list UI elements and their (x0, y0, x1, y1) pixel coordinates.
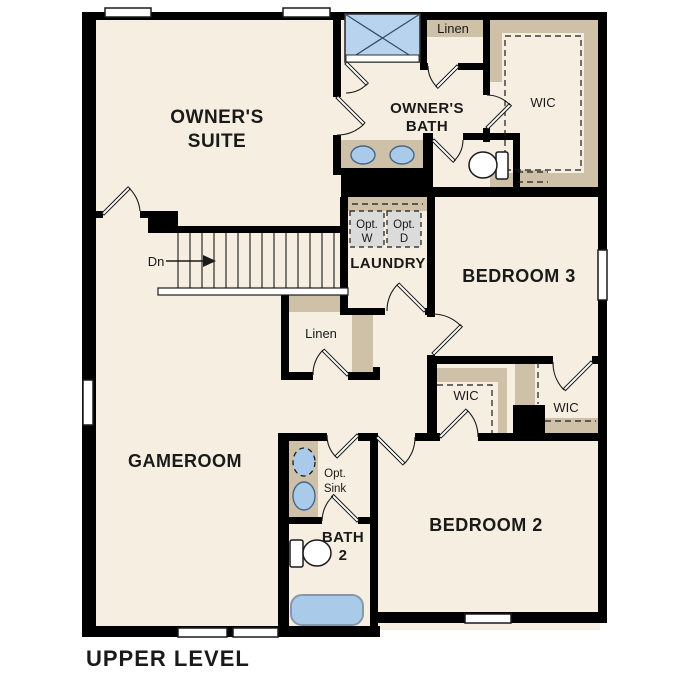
wall-bedroom3-south-b (592, 356, 607, 364)
toilet-tank (496, 152, 508, 179)
wall-linen-hall-south (281, 372, 313, 380)
sink-right (390, 146, 414, 164)
wic-owners-shelf-top (490, 19, 598, 33)
wall-stair-top (178, 226, 348, 233)
wic-owners-shelf-right (584, 33, 598, 187)
label-opt-dryer-line1: Opt. (393, 219, 415, 231)
wall-bath-west-lower (333, 135, 341, 175)
toilet-tank (290, 540, 303, 567)
label-opt-sink-line2: Sink (324, 483, 347, 495)
wall-laundry-south (340, 308, 385, 315)
label-opt-sink-line1: Opt. (324, 468, 346, 480)
sink-left (351, 146, 375, 164)
sink (293, 482, 315, 510)
wall-bath2-mid (283, 517, 322, 524)
label-opt-dryer-line2: D (400, 233, 408, 245)
floor-plan-drawing: OWNER'S SUITE OWNER'S BATH Linen WIC Dn … (0, 0, 687, 687)
label-opt-washer-line2: W (362, 233, 373, 245)
wall-toilet-west (423, 140, 433, 187)
label-opt-washer-line1: Opt. (356, 219, 378, 231)
wall-wic1-west (427, 364, 437, 441)
label-bedroom3: BEDROOM 3 (462, 266, 576, 286)
label-bedroom2: BEDROOM 2 (429, 515, 543, 535)
wall-gameroom-east (278, 433, 289, 636)
window-gameroom-bottom-right (233, 628, 278, 637)
wall-bedroom3-south-a (427, 356, 553, 364)
bathtub (291, 595, 363, 625)
window-bedroom3-right (598, 250, 607, 300)
label-owners-bath-line1: OWNER'S (390, 100, 464, 117)
label-stairs-dn: Dn (148, 254, 165, 269)
label-gameroom: GAMEROOM (128, 451, 242, 471)
optional-sink (293, 448, 315, 476)
label-bath2-line2: 2 (339, 547, 348, 564)
wall-toilet-east (513, 133, 520, 187)
wall-linen-hall-west (281, 294, 289, 380)
label-laundry: LAUNDRY (350, 255, 426, 272)
label-owners-bath-line2: BATH (406, 118, 448, 135)
stair-rail (158, 288, 348, 295)
wic-bedroom3-shelf-top (432, 368, 507, 382)
label-wic-bedroom3: WIC (453, 388, 478, 403)
wall-linen-wic (483, 12, 490, 95)
shower (345, 14, 420, 62)
wall-laundry-east (427, 197, 435, 317)
floor-plan-page: OWNER'S SUITE OWNER'S BATH Linen WIC Dn … (0, 0, 687, 687)
label-owners-suite-line1: OWNER'S (170, 107, 264, 128)
wall-mid-horizontal (341, 187, 607, 197)
label-owners-suite-line2: SUITE (188, 131, 246, 152)
label-wic-owners: WIC (530, 95, 555, 110)
window-gameroom-left (83, 380, 93, 425)
linen-hall-shelf-side (352, 312, 373, 372)
wic-bedroom3-shelf-right (498, 382, 507, 433)
shower-door-track (346, 55, 419, 62)
window-suite-top-left (105, 8, 151, 17)
wall-exterior-right (598, 12, 607, 623)
wic-owners-shelf-left (490, 33, 502, 82)
wall-shower-linen (420, 12, 427, 70)
linen-hall-shelf-top (283, 294, 340, 312)
wall-linen-hall-east-block (373, 367, 380, 380)
wall-suite-south-a (96, 211, 103, 218)
wall-exterior-left (82, 12, 96, 637)
label-linen-upper: Linen (437, 21, 469, 36)
wall-bath-west-upper (333, 12, 341, 97)
wall-bath2-mid-jamb (358, 517, 378, 524)
wall-bath2-east (370, 433, 378, 636)
wall-suite-south-b (140, 211, 148, 218)
window-gameroom-bottom-left (178, 628, 227, 637)
owners-toilet (469, 152, 508, 179)
wall-wic-mid-block (513, 405, 545, 441)
window-bedroom2-bottom (465, 614, 511, 623)
wall-linen-south-jamb (420, 63, 428, 70)
wall-exterior-bottom-left (82, 626, 380, 637)
label-bath2-line1: BATH (322, 529, 364, 546)
label-wic-bedroom2: WIC (553, 400, 578, 415)
wall-stair-block (148, 211, 178, 233)
toilet-bowl (469, 152, 497, 178)
wall-toilet-north (463, 133, 520, 140)
plan-title: UPPER LEVEL (86, 646, 250, 671)
wall-vanity-chase (341, 168, 423, 190)
wic-bedroom2-shelf-left (515, 362, 535, 407)
label-linen-hall: Linen (305, 326, 337, 341)
wall-bedroom2-north-a (415, 433, 440, 441)
window-suite-top-right (283, 8, 330, 17)
